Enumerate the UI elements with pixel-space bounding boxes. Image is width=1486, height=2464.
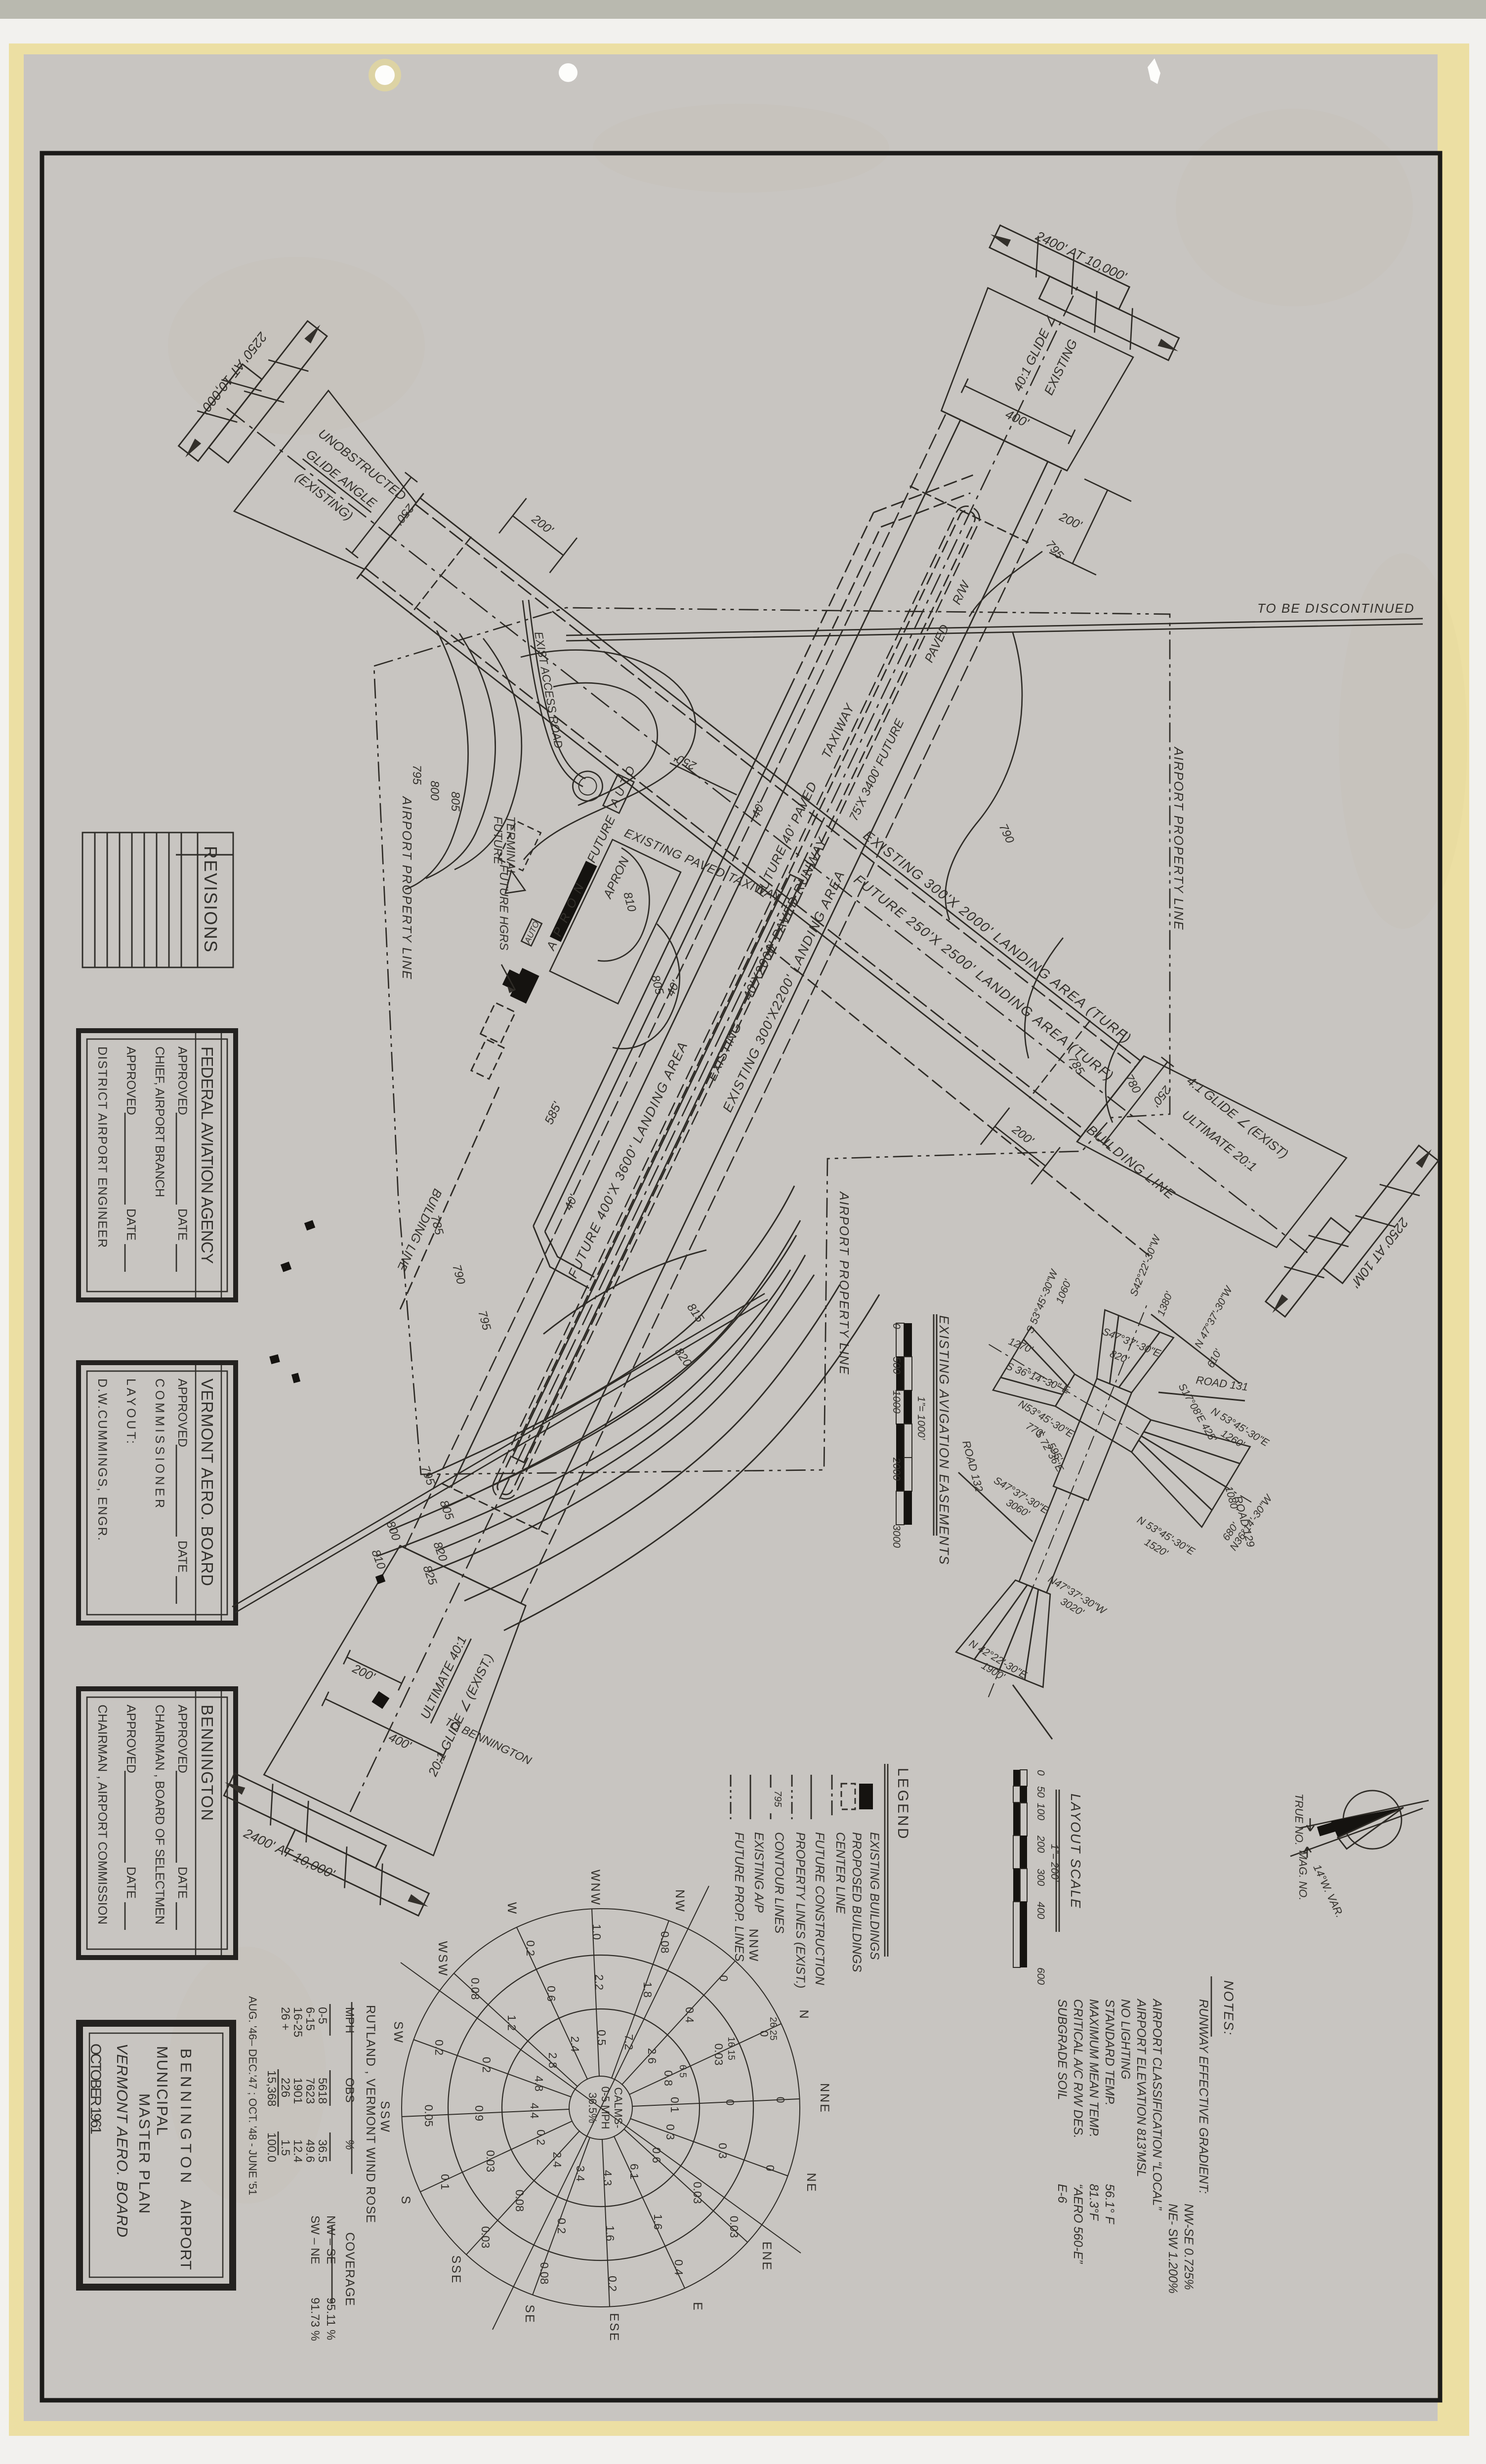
svg-text:NNE: NNE <box>818 2083 831 2114</box>
svg-text:795: 795 <box>410 765 423 785</box>
svg-text:0.5: 0.5 <box>595 2030 608 2046</box>
svg-text:0-5 MPH: 0-5 MPH <box>599 2087 612 2130</box>
svg-text:MUNICIPAL: MUNICIPAL <box>154 2046 171 2135</box>
svg-text:2.2: 2.2 <box>593 1974 606 1990</box>
svg-text:0.03: 0.03 <box>728 2216 741 2238</box>
svg-text:FUTURE CONSTRUCTION: FUTURE CONSTRUCTION <box>813 1832 826 1986</box>
svg-text:0.1: 0.1 <box>668 2097 681 2113</box>
svg-text:MASTER PLAN: MASTER PLAN <box>136 2093 153 2213</box>
svg-text:CONTOUR LINES: CONTOUR LINES <box>772 1832 786 1933</box>
svg-text:600: 600 <box>1035 1967 1046 1985</box>
svg-text:COVERAGE: COVERAGE <box>343 2232 357 2306</box>
svg-text:NOTES:: NOTES: <box>1221 1980 1236 2036</box>
svg-text:1000: 1000 <box>891 1390 902 1414</box>
svg-text:4.8: 4.8 <box>533 2076 545 2091</box>
svg-text:NW – SE: NW – SE <box>324 2215 337 2264</box>
svg-text:DATE: DATE <box>175 1209 189 1241</box>
svg-text:EXISTING BUILDINGS: EXISTING BUILDINGS <box>867 1832 881 1960</box>
svg-text:1.2: 1.2 <box>505 2015 518 2031</box>
svg-text:3000: 3000 <box>891 1525 902 1548</box>
svg-text:VERMONT AERO. BOARD: VERMONT AERO. BOARD <box>198 1378 216 1586</box>
svg-text:DATE: DATE <box>124 1209 138 1241</box>
svg-text:400: 400 <box>1035 1902 1046 1919</box>
svg-text:1”= 200’: 1”= 200’ <box>1049 1844 1060 1882</box>
svg-text:5618: 5618 <box>316 2078 329 2104</box>
svg-text:APPROVED: APPROVED <box>175 1378 189 1447</box>
svg-text:APPROVED: APPROVED <box>175 1705 189 1773</box>
svg-text:STANDARD TEMP.: STANDARD TEMP. <box>1103 1999 1116 2106</box>
svg-text:FEDERAL AVIATION AGENCY: FEDERAL AVIATION AGENCY <box>198 1046 216 1264</box>
svg-text:0: 0 <box>764 2165 777 2172</box>
svg-text:LEGEND: LEGEND <box>895 1768 911 1840</box>
svg-text:NW: NW <box>673 1889 687 1913</box>
svg-text:CHIEF, AIRPORT BRANCH: CHIEF, AIRPORT BRANCH <box>153 1046 166 1197</box>
svg-text:NW-SE 0.725%: NW-SE 0.725% <box>1182 2204 1196 2290</box>
svg-text:0: 0 <box>774 2097 787 2103</box>
svg-text:0.4: 0.4 <box>683 2007 696 2023</box>
svg-text:0.2: 0.2 <box>524 1940 537 1956</box>
svg-text:0.05: 0.05 <box>422 2105 435 2127</box>
svg-text:AIRPORT: AIRPORT <box>177 2200 195 2270</box>
svg-text:0.03: 0.03 <box>479 2226 492 2249</box>
svg-text:36.5%: 36.5% <box>586 2092 599 2123</box>
svg-text:SW: SW <box>391 2021 405 2044</box>
svg-text:91.73 %: 91.73 % <box>308 2297 322 2341</box>
svg-text:1”= 1000’: 1”= 1000’ <box>915 1396 927 1440</box>
svg-text:NE: NE <box>804 2173 818 2193</box>
svg-text:1.6: 1.6 <box>604 2225 617 2241</box>
svg-text:CHAIRMAN , BOARD OF SELECTM: CHAIRMAN , BOARD OF SELECTMEN <box>153 1705 166 1924</box>
svg-text:EXISTING A/P: EXISTING A/P <box>752 1832 766 1913</box>
svg-text:200: 200 <box>1035 1835 1046 1853</box>
svg-text:100: 100 <box>1035 1803 1046 1820</box>
svg-text:16 15: 16 15 <box>726 2037 736 2060</box>
svg-text:0.8: 0.8 <box>662 2070 675 2086</box>
svg-text:FUTURE PROP. LINES: FUTURE PROP. LINES <box>732 1832 746 1962</box>
svg-text:APPROVED: APPROVED <box>175 1046 189 1115</box>
svg-text:500: 500 <box>891 1357 902 1374</box>
svg-text:ENE: ENE <box>760 2242 774 2271</box>
svg-text:1.8: 1.8 <box>641 1982 654 1998</box>
svg-text:0.6: 0.6 <box>545 1986 558 2002</box>
svg-text:16-25: 16-25 <box>291 2007 304 2037</box>
svg-text:7623: 7623 <box>303 2078 317 2104</box>
svg-text:PROPOSED BUILDINGS: PROPOSED BUILDINGS <box>850 1832 864 1972</box>
svg-text:26 +: 26 + <box>279 2007 292 2030</box>
svg-text:226: 226 <box>279 2078 292 2097</box>
svg-text:APPROVED: APPROVED <box>124 1705 138 1773</box>
svg-text:REVISIONS: REVISIONS <box>201 846 221 952</box>
svg-text:300: 300 <box>1035 1869 1046 1886</box>
svg-text:AIRPORT PROPERTY LINE: AIRPORT PROPERTY LINE <box>1171 746 1186 930</box>
svg-text:LAYOUT SCALE: LAYOUT SCALE <box>1068 1794 1083 1909</box>
svg-text:DISTRICT AIRPORT ENGINEER: DISTRICT AIRPORT ENGINEER <box>95 1046 109 1248</box>
svg-text:0.3: 0.3 <box>664 2124 677 2140</box>
svg-text:15,368: 15,368 <box>265 2070 278 2106</box>
svg-text:TO BE DISCONTINUED: TO BE DISCONTINUED <box>1257 601 1415 616</box>
svg-text:0.3: 0.3 <box>716 2143 729 2159</box>
svg-text:805: 805 <box>449 792 462 812</box>
svg-text:CHAIRMAN , AIRPORT COMMISSIO: CHAIRMAN , AIRPORT COMMISSION <box>95 1705 109 1924</box>
svg-text:VERMONT AERO. BOARD: VERMONT AERO. BOARD <box>114 2044 131 2237</box>
svg-text:RUTLAND , VERMONT WIND ROSE: RUTLAND , VERMONT WIND ROSE <box>364 2005 377 2223</box>
svg-text:SW – NE: SW – NE <box>308 2215 322 2264</box>
svg-text:CRITICAL A/C R/W DES.: CRITICAL A/C R/W DES. <box>1071 1999 1085 2138</box>
svg-text:AIRPORT PROPERTY LINE: AIRPORT PROPERTY LINE <box>400 795 414 980</box>
svg-text:26 25: 26 25 <box>768 2017 778 2041</box>
svg-text:2000: 2000 <box>891 1457 902 1481</box>
svg-text:0: 0 <box>891 1323 902 1329</box>
svg-text:DATE: DATE <box>175 1541 189 1573</box>
svg-text:1.0: 1.0 <box>590 1924 603 1940</box>
svg-text:49.6: 49.6 <box>303 2139 317 2163</box>
svg-text:4.4: 4.4 <box>528 2103 541 2119</box>
svg-text:DATE: DATE <box>124 1867 138 1899</box>
svg-text:2.4: 2.4 <box>551 2152 564 2168</box>
svg-text:E: E <box>691 2302 704 2312</box>
svg-text:AIRPORT PROPERTY LINE: AIRPORT PROPERTY LINE <box>837 1191 852 1375</box>
svg-text:4.3: 4.3 <box>601 2170 614 2186</box>
svg-text:36.5: 36.5 <box>316 2139 329 2163</box>
svg-text:95.11 %: 95.11 % <box>324 2297 337 2340</box>
svg-text:CENTER LINE: CENTER LINE <box>833 1832 847 1914</box>
svg-text:0.1: 0.1 <box>439 2174 452 2190</box>
svg-text:3.4: 3.4 <box>574 2166 587 2181</box>
svg-text:0.08: 0.08 <box>659 1931 671 1954</box>
svg-text:6 5: 6 5 <box>677 2065 688 2078</box>
svg-text:SE: SE <box>523 2304 537 2324</box>
svg-text:MAG. NO.: MAG. NO. <box>1297 1850 1309 1900</box>
svg-text:50: 50 <box>1035 1786 1046 1798</box>
svg-text:ESE: ESE <box>607 2313 621 2342</box>
svg-text:BENNINGTON: BENNINGTON <box>198 1705 216 1821</box>
svg-text:CALMS-: CALMS- <box>612 2087 624 2128</box>
svg-text:SSW: SSW <box>378 2101 392 2133</box>
svg-text:E-6: E-6 <box>1055 2184 1069 2203</box>
svg-text:6.1: 6.1 <box>628 2164 641 2179</box>
svg-text:0.03: 0.03 <box>484 2150 497 2172</box>
svg-text:0.2: 0.2 <box>555 2218 568 2234</box>
svg-text:6-15: 6-15 <box>303 2007 317 2031</box>
svg-text:2.4: 2.4 <box>569 2036 581 2052</box>
svg-text:AIRPORT ELEVATION 813’MSL: AIRPORT ELEVATION 813’MSL <box>1134 1998 1148 2177</box>
svg-text:1.5: 1.5 <box>279 2139 292 2156</box>
svg-text:0.08: 0.08 <box>538 2262 551 2285</box>
svg-text:SUBGRADE SOIL: SUBGRADE SOIL <box>1055 1999 1069 2100</box>
svg-text:0.2: 0.2 <box>606 2276 619 2292</box>
svg-text:800: 800 <box>428 781 441 801</box>
svg-text:DATE: DATE <box>175 1867 189 1899</box>
svg-text:MAXIMUM MEAN TEMP.: MAXIMUM MEAN TEMP. <box>1087 1999 1101 2137</box>
svg-text:LAYOUT:: LAYOUT: <box>124 1378 138 1444</box>
svg-text:AIRPORT CLASSIFICATION “LOCA: AIRPORT CLASSIFICATION “LOCAL” <box>1150 1998 1164 2211</box>
svg-text:W: W <box>505 1902 519 1916</box>
svg-text:12.4: 12.4 <box>291 2139 304 2163</box>
svg-text:OCTOBER 1961: OCTOBER 1961 <box>87 2044 104 2134</box>
svg-text:COMMISSIONER: COMMISSIONER <box>153 1378 166 1508</box>
svg-text:0.6: 0.6 <box>650 2147 663 2163</box>
svg-text:0.4: 0.4 <box>672 2259 685 2275</box>
svg-text:0: 0 <box>724 2099 737 2106</box>
svg-text:0.08: 0.08 <box>513 2190 526 2212</box>
svg-text:APPROVED: APPROVED <box>124 1046 138 1115</box>
svg-text:2.8: 2.8 <box>546 2052 559 2068</box>
svg-text:TRUE NO.: TRUE NO. <box>1293 1794 1305 1845</box>
svg-text:EXISTING AVIGATION EASEMENTS: EXISTING AVIGATION EASEMENTS <box>937 1315 951 1565</box>
svg-text:NO LIGHTING: NO LIGHTING <box>1118 1999 1132 2080</box>
svg-text:D.W.CUMMINGS, ENGR.: D.W.CUMMINGS, ENGR. <box>95 1378 109 1541</box>
svg-text:0.9: 0.9 <box>473 2105 486 2121</box>
svg-text:WSW: WSW <box>436 1941 450 1977</box>
svg-text:56.1° F: 56.1° F <box>1103 2184 1116 2225</box>
svg-text:0: 0 <box>1035 1770 1046 1776</box>
svg-text:RUNWAY EFFECTIVE GRADIENT:: RUNWAY EFFECTIVE GRADIENT: <box>1197 1999 1210 2194</box>
svg-text:“AERO 560-E”: “AERO 560-E” <box>1071 2184 1085 2264</box>
svg-text:SSE: SSE <box>449 2255 463 2284</box>
svg-text:NE- SW 1.200%: NE- SW 1.200% <box>1166 2204 1180 2294</box>
svg-text:BENNINGTON: BENNINGTON <box>177 2048 195 2183</box>
svg-text:0.2: 0.2 <box>433 2040 446 2055</box>
svg-text:0-5: 0-5 <box>316 2007 329 2024</box>
svg-text:81.3°F: 81.3°F <box>1087 2184 1101 2221</box>
svg-text:0.2: 0.2 <box>535 2130 547 2145</box>
svg-text:FUTURE HGRS: FUTURE HGRS <box>497 865 510 950</box>
svg-text:795: 795 <box>772 1791 783 1807</box>
svg-text:0.2: 0.2 <box>480 2057 493 2073</box>
svg-text:0.03: 0.03 <box>691 2182 704 2204</box>
svg-text:2.6: 2.6 <box>646 2048 659 2064</box>
svg-text:S: S <box>399 2196 413 2206</box>
svg-text:7.2: 7.2 <box>622 2034 635 2050</box>
svg-text:%: % <box>343 2139 356 2150</box>
svg-text:NNW: NNW <box>746 1929 760 1963</box>
svg-text:0.03: 0.03 <box>712 2044 725 2066</box>
svg-text:0: 0 <box>717 1975 730 1982</box>
svg-text:PROPERTY LINES (EXIST.): PROPERTY LINES (EXIST.) <box>793 1832 807 1988</box>
svg-text:100.0: 100.0 <box>265 2132 278 2162</box>
svg-text:N: N <box>797 2009 811 2020</box>
svg-text:1901: 1901 <box>291 2078 304 2104</box>
svg-text:1.6: 1.6 <box>652 2214 664 2230</box>
svg-text:AUG. '46– DEC.'47 ; OCT. '48: AUG. '46– DEC.'47 ; OCT. '48 - JUNE '51 <box>247 1996 259 2195</box>
svg-text:MPH: MPH <box>343 2007 356 2033</box>
svg-text:WNW: WNW <box>588 1870 602 1906</box>
svg-text:0.08: 0.08 <box>469 1978 482 2000</box>
svg-text:OBS: OBS <box>343 2078 356 2103</box>
